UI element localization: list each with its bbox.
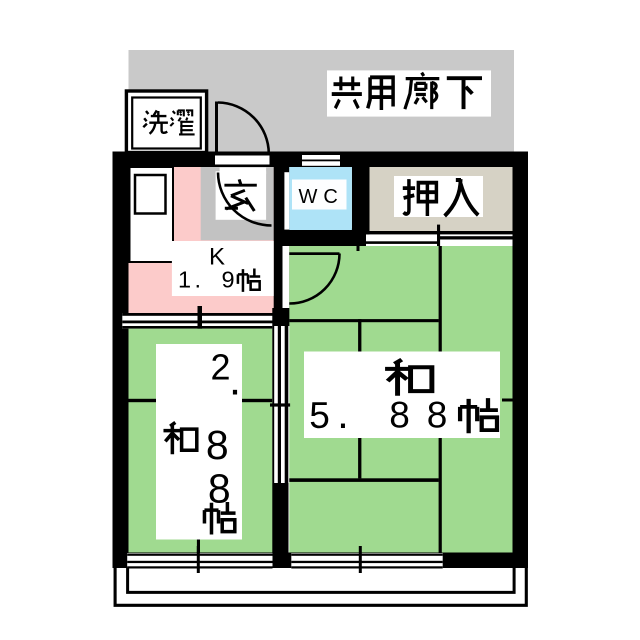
svg-text:.: .	[195, 267, 202, 293]
svg-text:8: 8	[389, 395, 410, 436]
svg-text:1: 1	[178, 267, 191, 293]
svg-text:2: 2	[210, 347, 230, 388]
svg-text:8: 8	[206, 422, 229, 468]
svg-text:.: .	[229, 356, 241, 405]
svg-text:8: 8	[427, 395, 448, 436]
svg-text:WC: WC	[299, 186, 344, 208]
svg-text:.: .	[337, 390, 349, 437]
svg-text:5: 5	[309, 395, 330, 436]
svg-text:9: 9	[222, 267, 235, 293]
